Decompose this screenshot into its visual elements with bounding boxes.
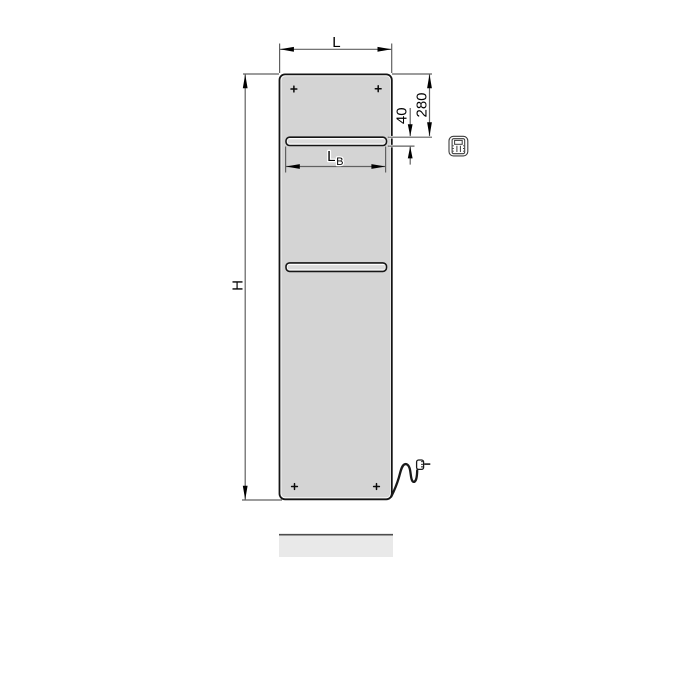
svg-text:H: H: [229, 280, 246, 291]
svg-text:280: 280: [413, 92, 430, 117]
svg-text:L: L: [332, 34, 340, 51]
svg-text:40: 40: [393, 107, 410, 124]
